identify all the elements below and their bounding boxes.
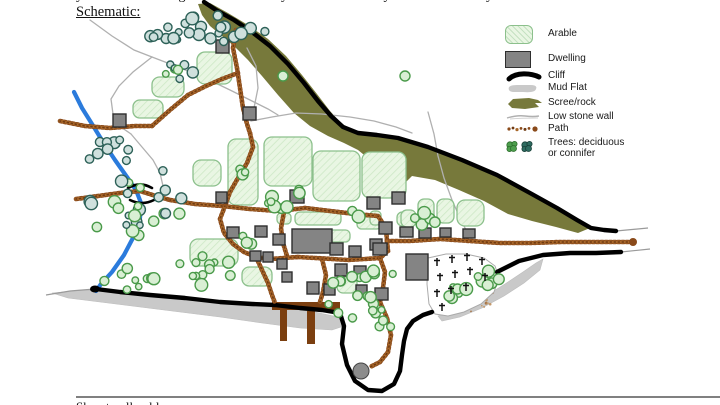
deciduous-tree (100, 276, 109, 285)
deciduous-tree (378, 307, 385, 314)
deciduous-tree (136, 184, 144, 192)
deciduous-tree (347, 272, 358, 283)
deciduous-tree (379, 316, 388, 325)
deciduous-tree (148, 273, 160, 285)
deciduous-tree (195, 279, 208, 292)
deciduous-tree (92, 222, 101, 231)
deciduous-tree (176, 260, 184, 268)
schematic-map (0, 0, 720, 405)
dwelling (463, 229, 475, 238)
document-page: y g y y y Schematic: Arable Dwelling (0, 0, 720, 405)
horizontal-rule (76, 396, 720, 398)
conifer-tree (186, 12, 199, 25)
dwelling (440, 228, 451, 237)
deciduous-tree (325, 301, 332, 308)
conifer-tree (116, 136, 124, 144)
deciduous-tree (163, 71, 170, 78)
sand-stipple (483, 306, 485, 308)
deciduous-tree (149, 216, 159, 226)
deciduous-tree (474, 273, 482, 281)
dwelling (216, 192, 227, 203)
deciduous-tree (389, 270, 396, 277)
deciduous-tree (369, 307, 377, 315)
arable-field (133, 100, 163, 118)
deciduous-tree (352, 210, 365, 223)
conifer-tree (187, 67, 198, 78)
conifer-tree (116, 175, 128, 187)
deciduous-tree (123, 286, 130, 293)
deciduous-tree (189, 272, 196, 279)
arable-field (295, 212, 341, 225)
deciduous-tree (122, 263, 132, 273)
deciduous-tree (267, 198, 275, 206)
path-end-dot (629, 238, 637, 246)
clipped-text-bottom-fragment: Sh t ll bl (76, 399, 376, 405)
conifer-tree (213, 11, 222, 20)
schematic-map-svg (0, 0, 720, 405)
conifer-tree (205, 33, 216, 44)
shore-line (616, 228, 648, 231)
deciduous-tree (134, 202, 141, 209)
clipped-text-bottom: Sh t ll bl (76, 399, 376, 405)
dwelling (227, 227, 239, 238)
rock-circle (353, 363, 369, 379)
conifer-tree (193, 29, 205, 41)
deciduous-tree (132, 277, 139, 284)
conifer-tree (85, 155, 93, 163)
deciduous-tree (294, 187, 305, 198)
deciduous-tree (365, 292, 376, 303)
conifer-tree (124, 145, 133, 154)
conifer-tree (85, 197, 97, 209)
dwelling (406, 254, 428, 280)
dwelling (243, 107, 256, 120)
dwelling (379, 222, 392, 234)
dwelling (307, 282, 319, 294)
deciduous-tree (113, 203, 123, 213)
deciduous-tree (174, 208, 185, 219)
sand-stipple (489, 303, 492, 306)
conifer-tree (168, 33, 179, 44)
dwelling (367, 197, 380, 209)
deciduous-tree (430, 217, 440, 227)
deciduous-tree (353, 291, 363, 301)
conifer-tree (261, 28, 269, 36)
deciduous-tree (174, 65, 183, 74)
arable-field (313, 151, 360, 201)
dwelling (330, 243, 343, 255)
deciduous-tree (242, 169, 249, 176)
deciduous-tree (328, 277, 339, 288)
deciduous-tree (348, 314, 356, 322)
sand-stipple (487, 303, 489, 305)
conifer-tree (216, 22, 226, 32)
conifer-tree (159, 167, 167, 175)
arable-field (193, 160, 221, 186)
conifer-tree (164, 23, 172, 31)
stone-wall (131, 134, 163, 186)
dwelling (250, 251, 261, 261)
conifer-tree (184, 28, 194, 38)
deciduous-tree (444, 291, 454, 301)
deciduous-tree (482, 280, 493, 291)
conifer-tree (123, 222, 130, 229)
conifer-tree (102, 144, 112, 154)
deciduous-tree (400, 71, 410, 81)
pier (307, 311, 315, 344)
dwelling (282, 272, 292, 282)
deciduous-tree (198, 252, 207, 261)
dwelling (349, 246, 361, 257)
deciduous-tree (129, 210, 141, 222)
conifer-tree (149, 33, 158, 42)
dwelling (255, 226, 267, 237)
dwelling (335, 264, 347, 276)
deciduous-tree (192, 259, 200, 267)
arable-field (457, 200, 484, 226)
dwelling (263, 252, 273, 262)
deciduous-tree (411, 214, 420, 223)
deciduous-tree (493, 274, 504, 285)
dwelling (113, 114, 126, 127)
deciduous-tree (281, 201, 293, 213)
deciduous-tree (223, 256, 235, 268)
deciduous-tree (241, 237, 252, 248)
deciduous-tree (226, 271, 236, 281)
dwelling (292, 229, 332, 253)
shore-line (621, 249, 650, 252)
sand-stipple (470, 311, 472, 313)
dwelling (400, 227, 413, 237)
conifer-tree (154, 193, 163, 202)
deciduous-tree (136, 283, 142, 289)
conifer-tree (176, 193, 187, 204)
conifer-tree (93, 148, 103, 158)
deciduous-tree (368, 265, 380, 277)
dwelling (392, 192, 405, 204)
river-mouth-rock (90, 286, 100, 293)
conifer-tree (235, 27, 247, 39)
deciduous-tree (278, 71, 288, 81)
dwelling (273, 234, 285, 245)
dwelling (375, 288, 388, 300)
conifer-tree (220, 37, 228, 45)
conifer-tree (176, 75, 183, 82)
dwelling (277, 259, 287, 269)
pier (280, 310, 287, 341)
deciduous-tree (334, 309, 343, 318)
deciduous-tree (205, 265, 214, 274)
conifer-tree (123, 157, 131, 165)
sand-stipple (481, 305, 483, 307)
dwelling (373, 243, 387, 255)
arable-field (362, 152, 406, 198)
arable-field (264, 137, 312, 186)
conifer-tree (123, 189, 131, 197)
deciduous-tree (387, 323, 395, 331)
conifer-tree (161, 209, 171, 219)
cliff-line (497, 252, 621, 272)
